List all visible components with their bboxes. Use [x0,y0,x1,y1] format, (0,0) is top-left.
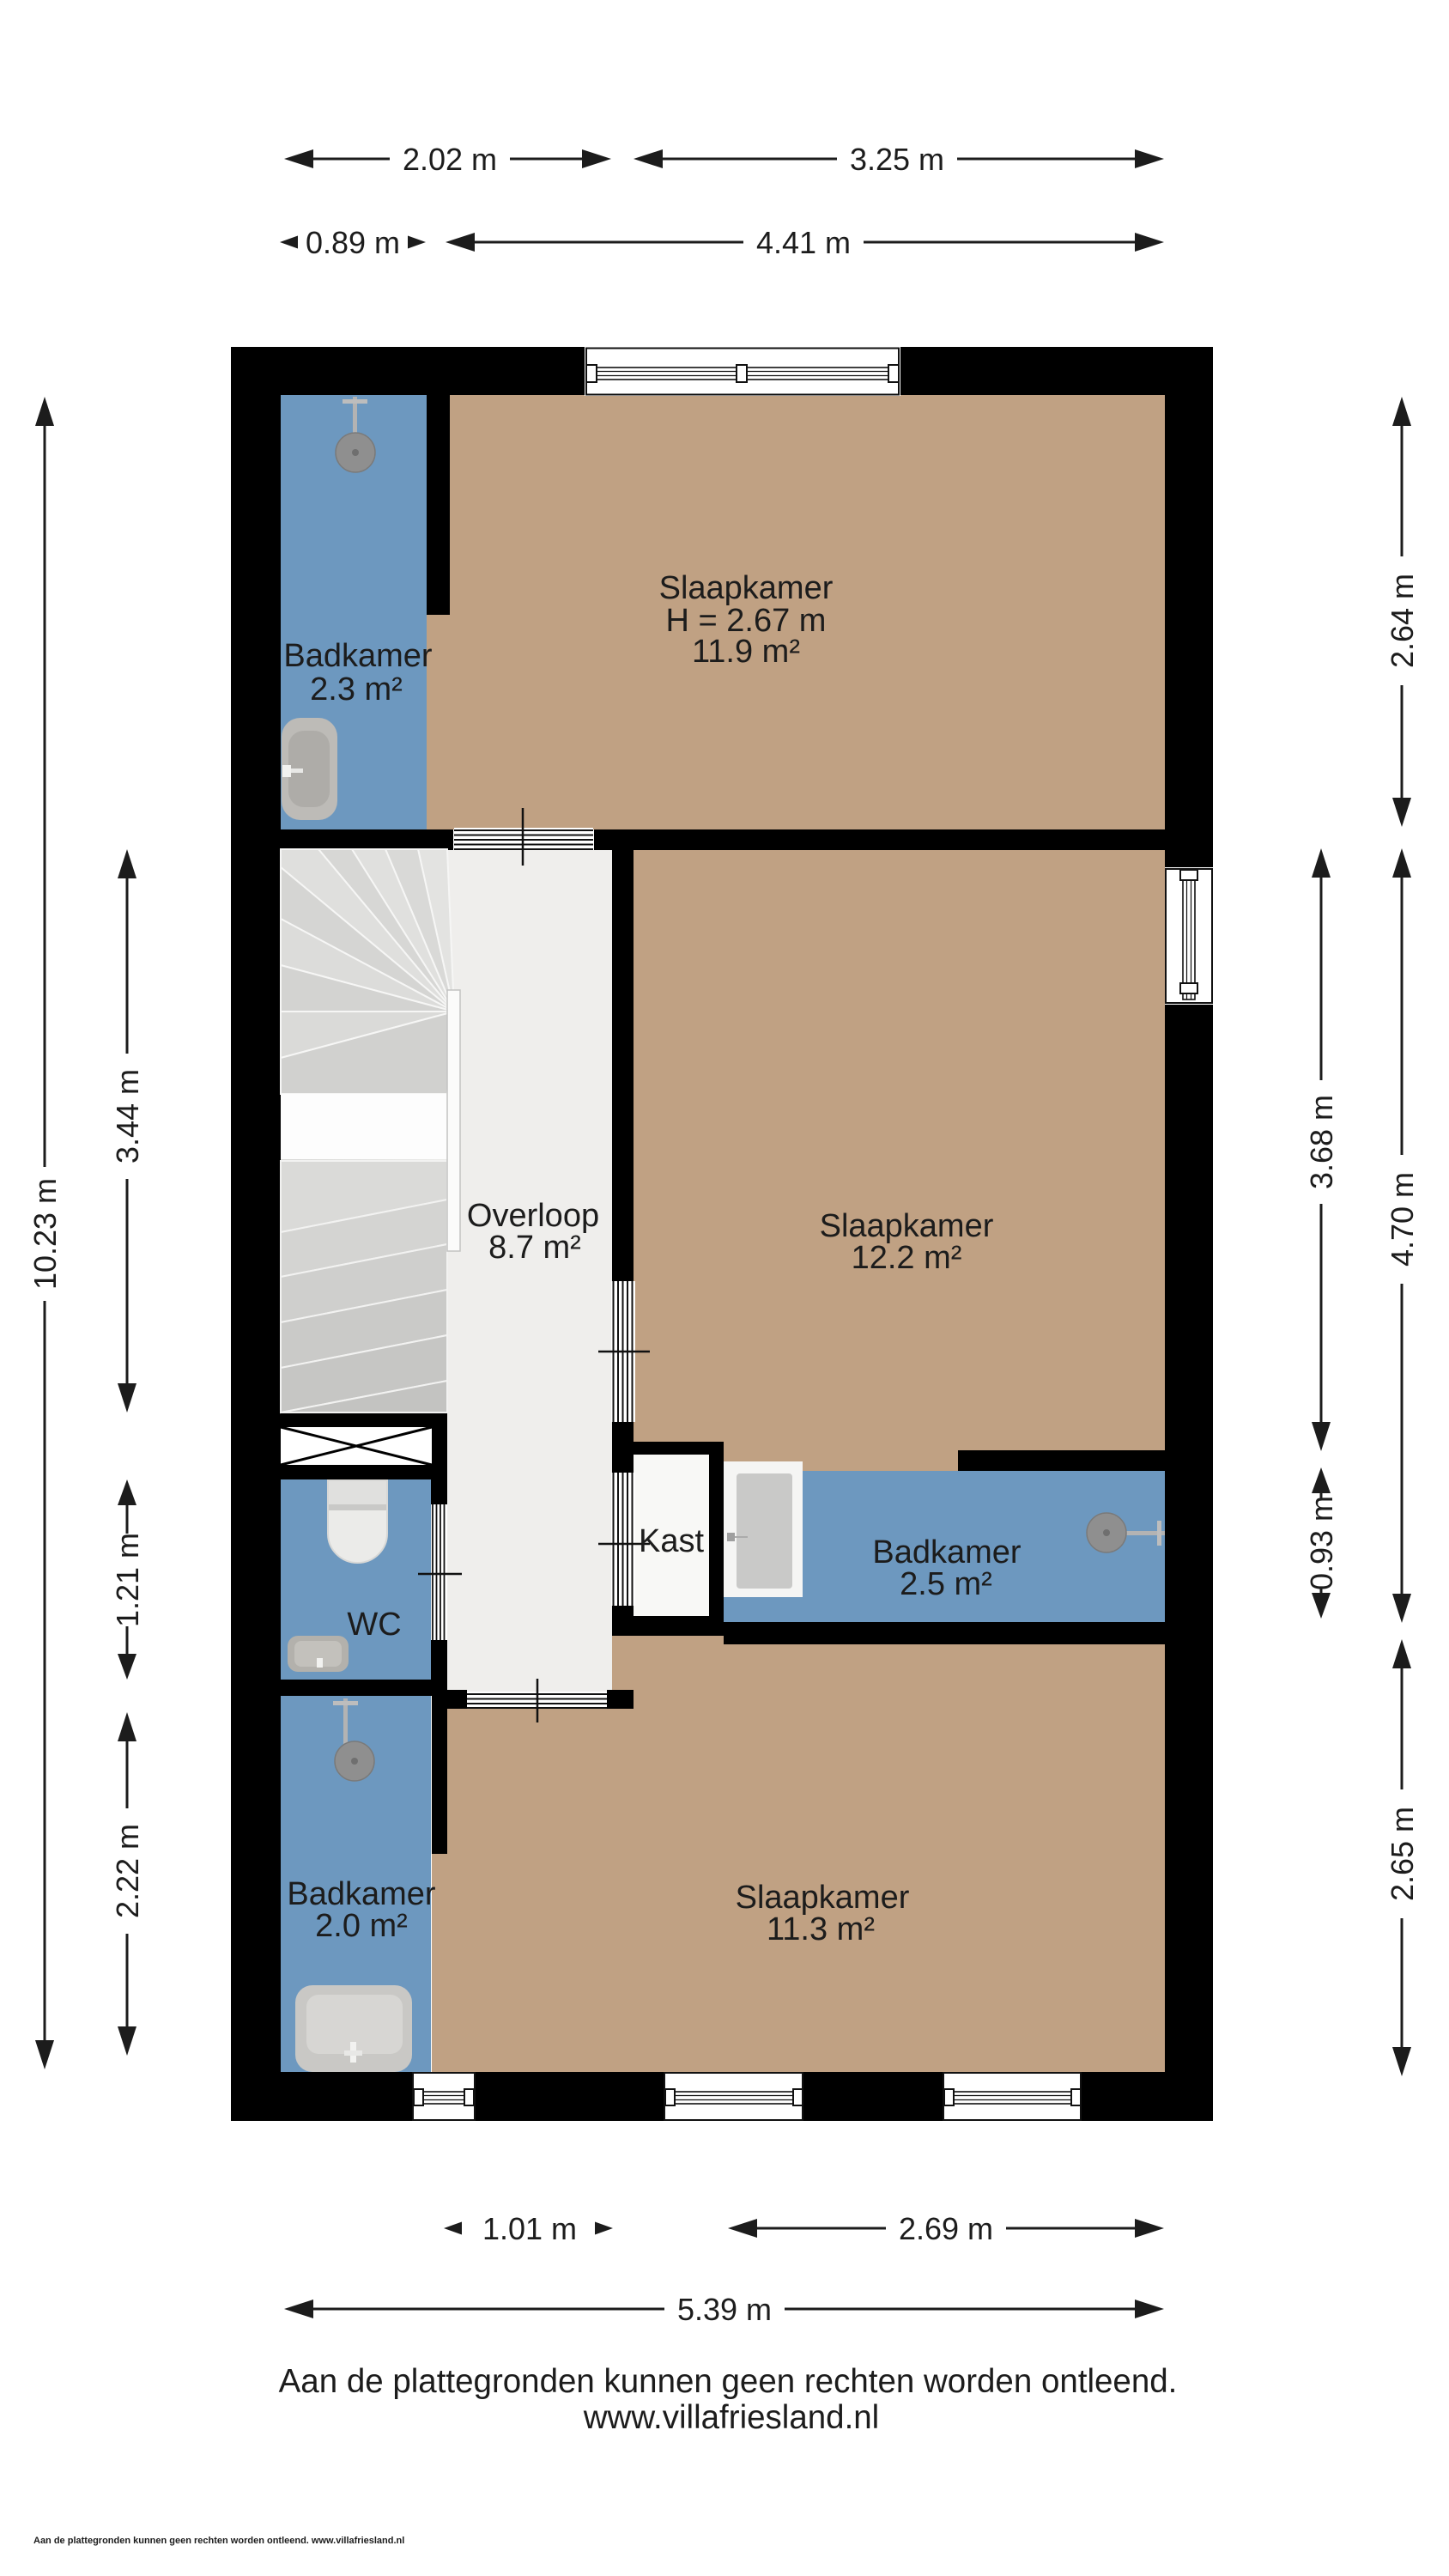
svg-text:2.3 m²: 2.3 m² [310,671,403,708]
svg-text:Aan de plattegronden kunnen ge: Aan de plattegronden kunnen geen rechten… [279,2363,1178,2400]
svg-text:3.68 m: 3.68 m [1304,1095,1339,1189]
svg-text:2.22 m: 2.22 m [110,1824,145,1918]
svg-text:Slaapkamer: Slaapkamer [659,570,834,606]
svg-text:Badkamer: Badkamer [287,1876,436,1912]
svg-text:Badkamer: Badkamer [283,638,433,674]
svg-text:1.21 m: 1.21 m [110,1533,145,1627]
svg-text:2.5 m²: 2.5 m² [900,1566,992,1602]
svg-text:11.9 m²: 11.9 m² [692,634,800,670]
svg-text:4.70 m: 4.70 m [1385,1172,1420,1267]
svg-text:2.0 m²: 2.0 m² [315,1908,408,1944]
svg-text:0.93 m: 0.93 m [1304,1496,1339,1590]
svg-text:2.02 m: 2.02 m [403,142,497,177]
svg-text:5.39 m: 5.39 m [677,2292,772,2327]
svg-text:Slaapkamer: Slaapkamer [736,1880,910,1916]
svg-text:2.65 m: 2.65 m [1385,1807,1420,1901]
svg-text:8.7 m²: 8.7 m² [488,1230,581,1266]
svg-text:Badkamer: Badkamer [872,1534,1022,1571]
svg-text:2.69 m: 2.69 m [899,2211,993,2246]
svg-text:10.23 m: 10.23 m [27,1178,63,1290]
svg-text:Slaapkamer: Slaapkamer [820,1208,994,1244]
svg-text:3.44 m: 3.44 m [110,1069,145,1163]
svg-text:4.41 m: 4.41 m [756,225,851,260]
svg-text:11.3 m²: 11.3 m² [767,1911,875,1947]
svg-text:3.25 m: 3.25 m [850,142,944,177]
svg-text:0.89 m: 0.89 m [306,225,400,260]
svg-text:WC: WC [347,1607,401,1643]
svg-text:www.villafriesland.nl: www.villafriesland.nl [583,2399,880,2436]
svg-text:Overloop: Overloop [467,1198,599,1234]
svg-text:Aan de plattegronden kunnen ge: Aan de plattegronden kunnen geen rechten… [33,2536,404,2546]
svg-text:2.64 m: 2.64 m [1385,574,1420,668]
svg-text:1.01 m: 1.01 m [482,2211,577,2246]
svg-text:12.2 m²: 12.2 m² [852,1240,962,1276]
svg-text:Kast: Kast [639,1523,704,1559]
